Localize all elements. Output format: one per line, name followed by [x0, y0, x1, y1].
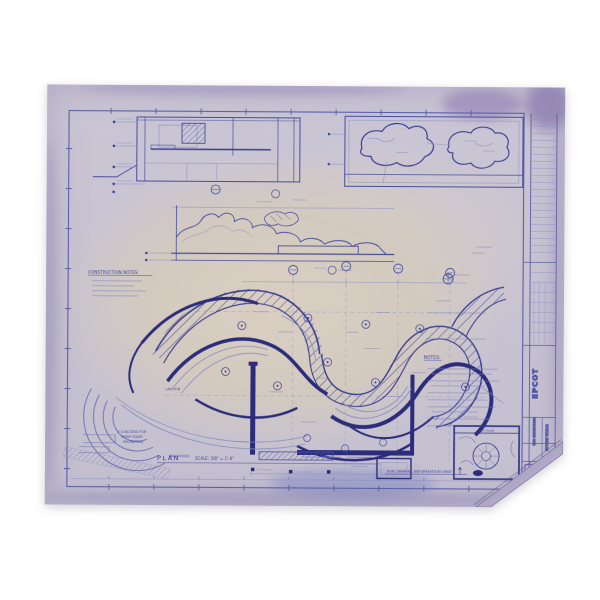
folded-corner [45, 84, 566, 507]
photo-background: EPCOT WED ENTERPRISES FUTURE WORLD 1-0-6… [0, 0, 600, 600]
blueprint-sheet: EPCOT WED ENTERPRISES FUTURE WORLD 1-0-6… [45, 84, 566, 507]
fold-flap [476, 441, 563, 508]
